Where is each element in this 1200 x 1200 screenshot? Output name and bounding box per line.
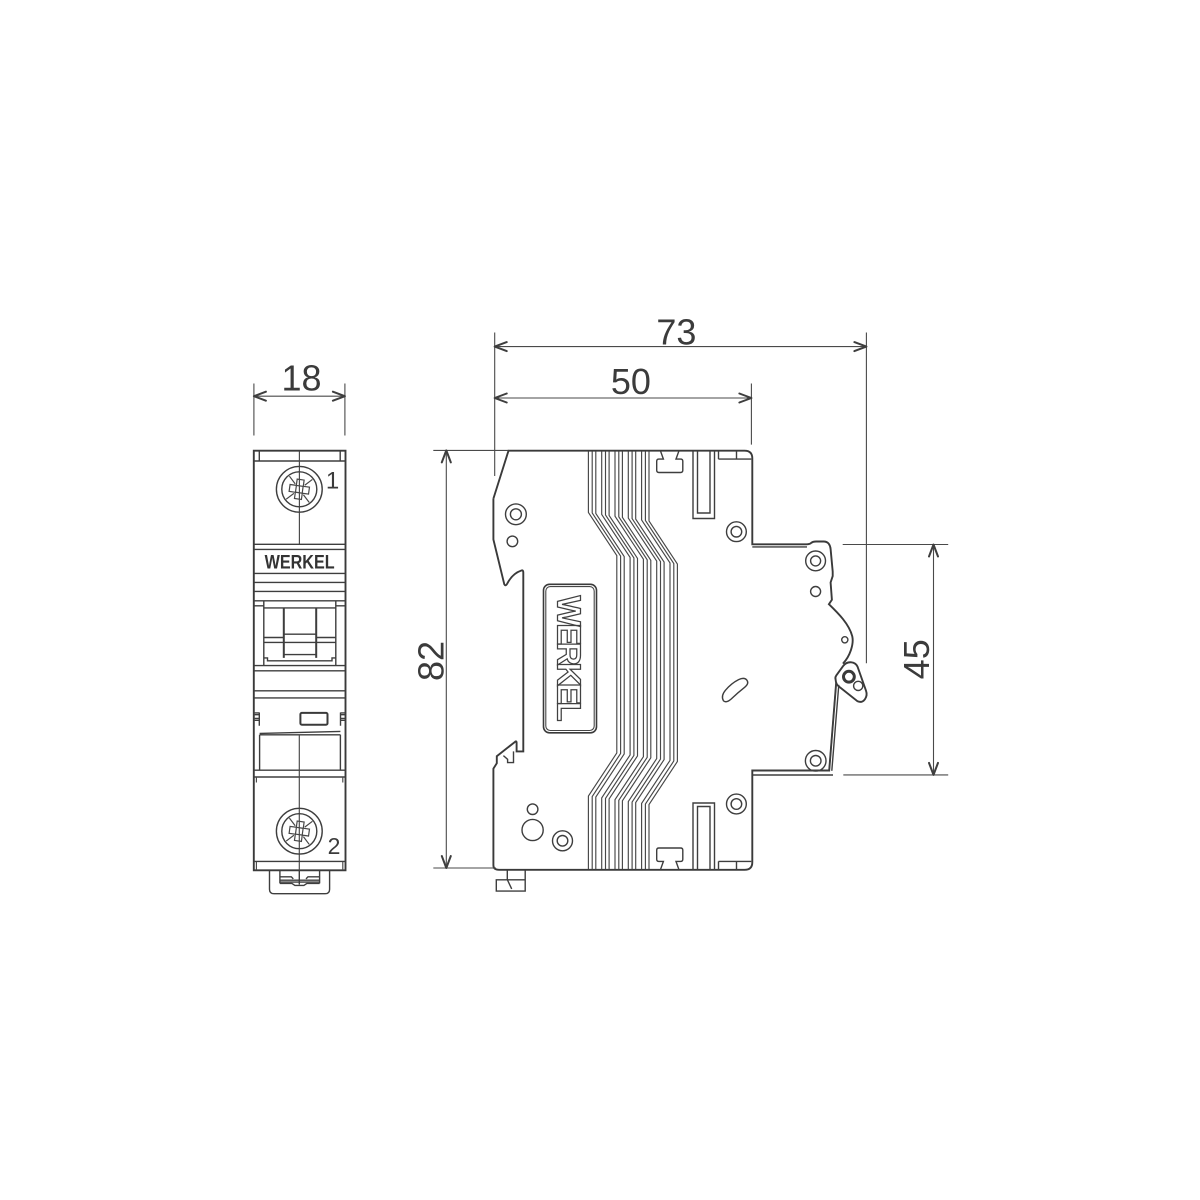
svg-text:45: 45: [896, 639, 937, 679]
svg-text:18: 18: [281, 358, 321, 399]
svg-text:2: 2: [328, 833, 341, 859]
svg-text:82: 82: [411, 641, 452, 681]
svg-text:1: 1: [326, 468, 339, 495]
svg-text:73: 73: [656, 312, 696, 353]
svg-text:50: 50: [611, 361, 651, 402]
svg-text:WERKEL: WERKEL: [265, 551, 335, 573]
svg-text:WERKEL: WERKEL: [551, 596, 588, 722]
